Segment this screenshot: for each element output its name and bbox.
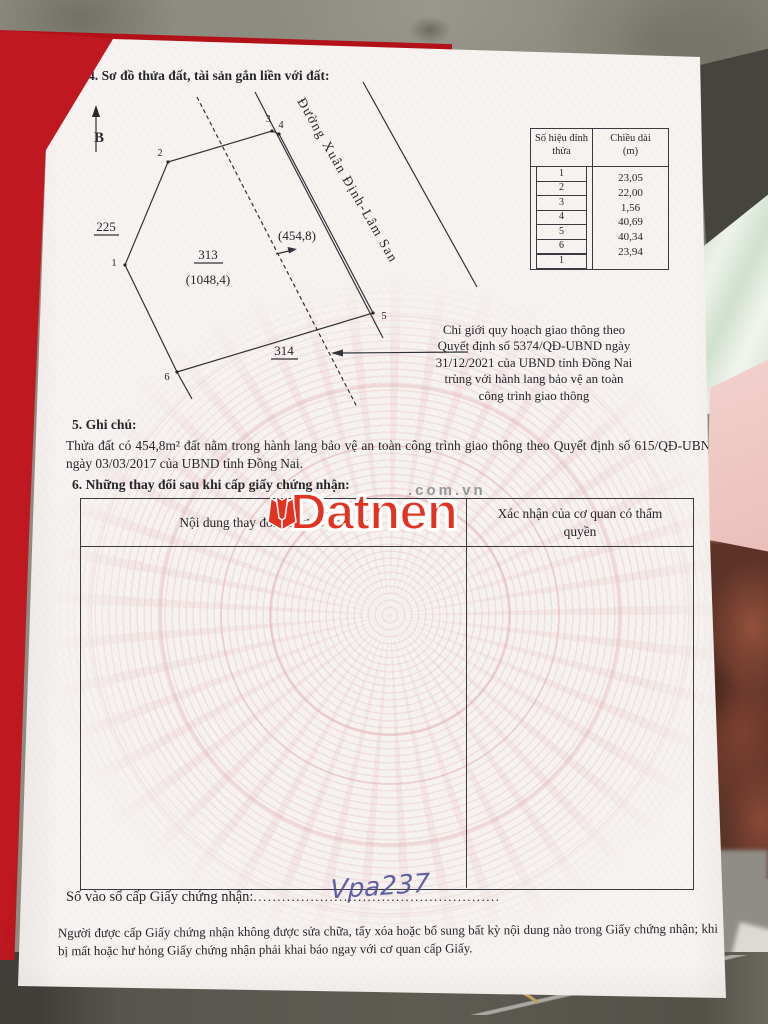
length-column-header: Chiều dài (m) — [593, 129, 668, 167]
changes-body-col2 — [467, 547, 693, 888]
length-header-line1: Chiều dài — [593, 132, 668, 145]
planning-note-line: trùng với hành lang bảo vệ an toàn — [388, 371, 680, 387]
length-value: 23,94 — [593, 246, 668, 261]
certificate-notice: Người được cấp Giấy chứng nhận không đượ… — [58, 921, 718, 961]
planning-note-line: công trình giao thông — [388, 388, 680, 404]
vertex-id-cell: 4 — [536, 210, 587, 225]
changes-table-body — [81, 547, 693, 888]
vertex-id-cell: 1 — [536, 254, 587, 269]
vertex-id-cell: 6 — [536, 239, 587, 254]
certificate-page: 4. Sơ đồ thửa đất, tài sản gắn liền với … — [0, 0, 768, 1024]
length-value: 22,00 — [593, 187, 668, 202]
planning-note-line: Chỉ giới quy hoạch giao thông theo — [388, 322, 680, 338]
vertex-length-table: Số hiệu đỉnh thửa 1234561 Chiều dài (m) … — [530, 128, 669, 270]
length-value: 40,69 — [593, 216, 668, 231]
section5-text: Thửa đất có 454,8m² đất nằm trong hành l… — [66, 437, 720, 472]
watermark-brand: Datnen — [290, 482, 457, 541]
length-value: 1,56 — [593, 202, 668, 217]
photo-of-land-certificate: 4. Sơ đồ thửa đất, tài sản gắn liền với … — [0, 0, 768, 1024]
changes-body-col1 — [81, 547, 467, 888]
vertex-id-cell: 2 — [536, 181, 587, 196]
length-column: Chiều dài (m) 23,0522,001,5640,6940,3423… — [593, 129, 668, 269]
vertex-column-header: Số hiệu đỉnh thửa — [531, 129, 592, 167]
vertex-id-cells: 1234561 — [531, 167, 592, 269]
length-header-line2: (m) — [593, 145, 668, 158]
vertex-id-cell: 3 — [536, 195, 587, 210]
register-label: Số vào sổ cấp Giấy chứng nhận: — [66, 889, 253, 905]
vertex-id-column: Số hiệu đỉnh thửa 1234561 — [531, 129, 593, 269]
length-value: 23,05 — [593, 172, 668, 187]
planning-note: Chỉ giới quy hoạch giao thông theoQuyết … — [388, 322, 680, 404]
section4-title: 4. Sơ đồ thửa đất, tài sản gắn liền với … — [88, 68, 330, 84]
watermark-book-icon — [262, 492, 302, 536]
planning-note-line: Quyết định số 5374/QĐ-UBND ngày — [388, 338, 680, 354]
section5-title: 5. Ghi chú: — [72, 417, 137, 433]
length-values: 23,0522,001,5640,6940,3423,94 — [593, 167, 668, 269]
vertex-id-cell: 1 — [536, 166, 587, 181]
datnen-watermark: .com.vn Datnen — [268, 480, 548, 560]
length-value: 40,34 — [593, 231, 668, 246]
planning-note-line: 31/12/2021 của UBND tỉnh Đồng Nai — [388, 355, 680, 371]
vertex-id-cell: 5 — [536, 224, 587, 239]
